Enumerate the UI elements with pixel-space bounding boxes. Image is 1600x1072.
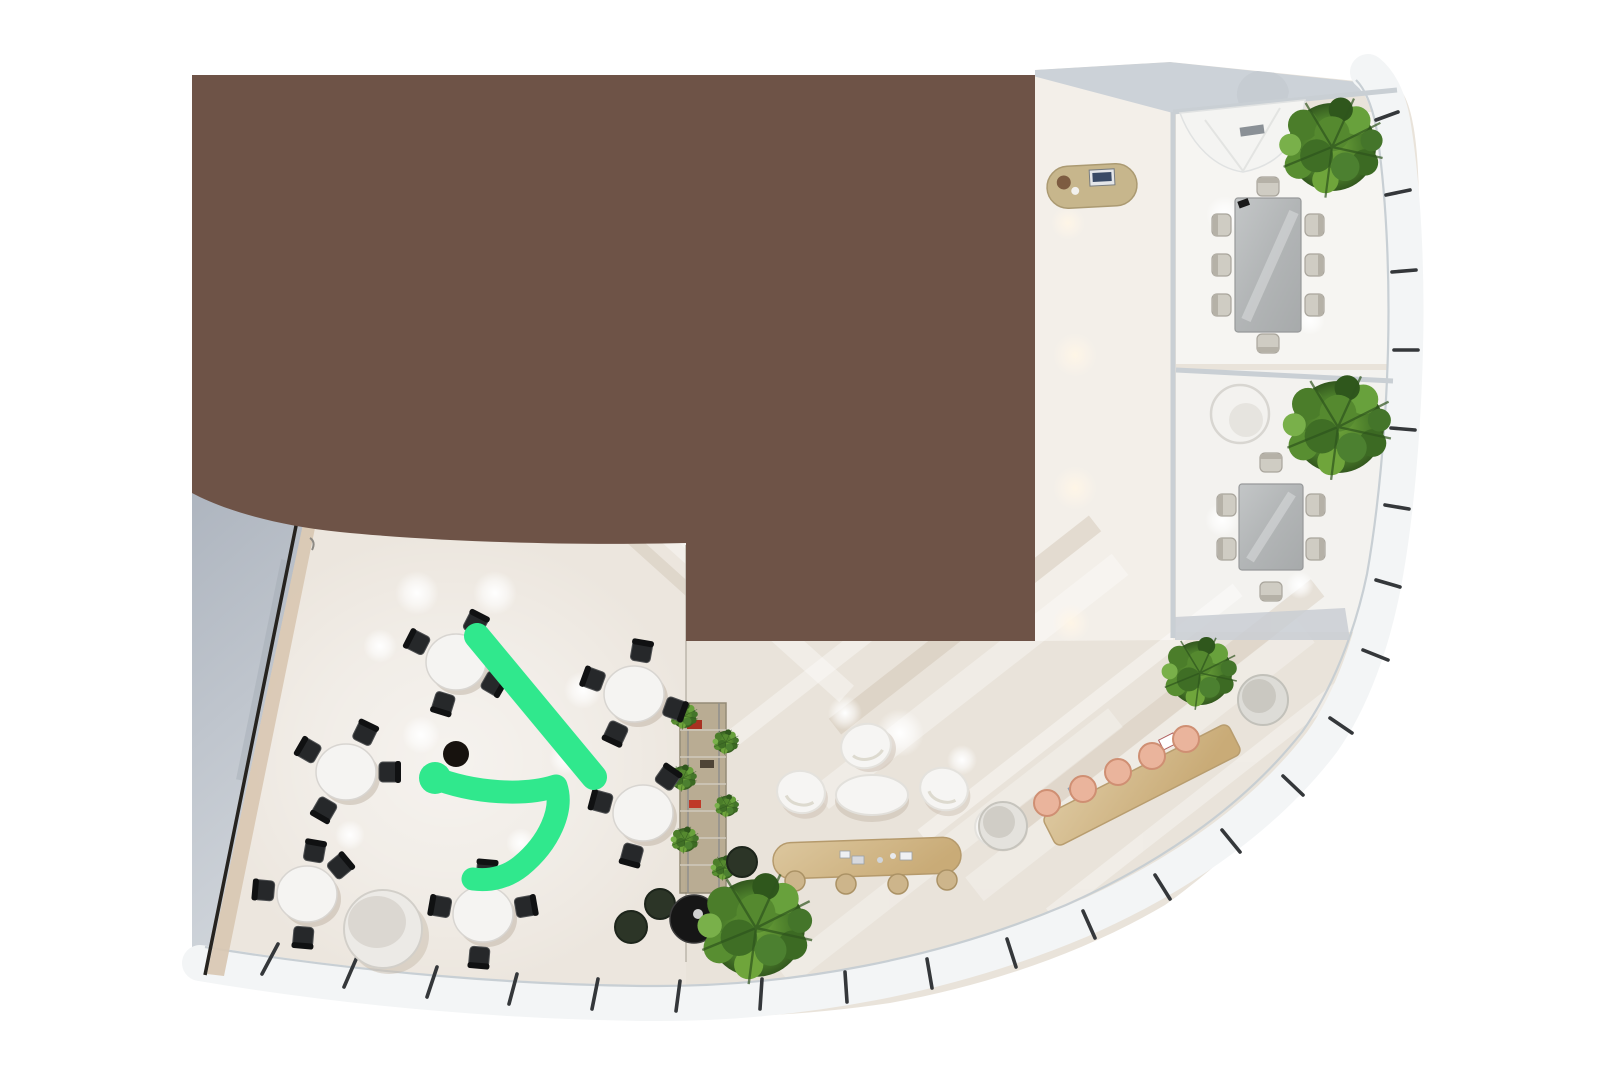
floor-plan	[0, 0, 1420, 1017]
small-black-stool	[443, 741, 469, 767]
dining-table	[453, 886, 513, 942]
dining-table	[316, 744, 376, 800]
pill-stool	[836, 874, 856, 894]
corridor	[1046, 163, 1138, 210]
dining-table	[613, 785, 673, 841]
dining-table	[604, 666, 664, 722]
floor-plan-canvas[interactable]	[0, 0, 1600, 1072]
laptop-screen	[1092, 172, 1111, 182]
shelf-red-item	[689, 800, 701, 808]
pill-stool	[888, 874, 908, 894]
shelf-dark-item	[700, 760, 714, 768]
coffee-table	[836, 775, 908, 815]
screenshot-root	[0, 0, 1600, 1072]
pill-stool	[937, 870, 957, 890]
dining-table	[277, 866, 337, 922]
tub-chair-seat	[1229, 403, 1263, 437]
